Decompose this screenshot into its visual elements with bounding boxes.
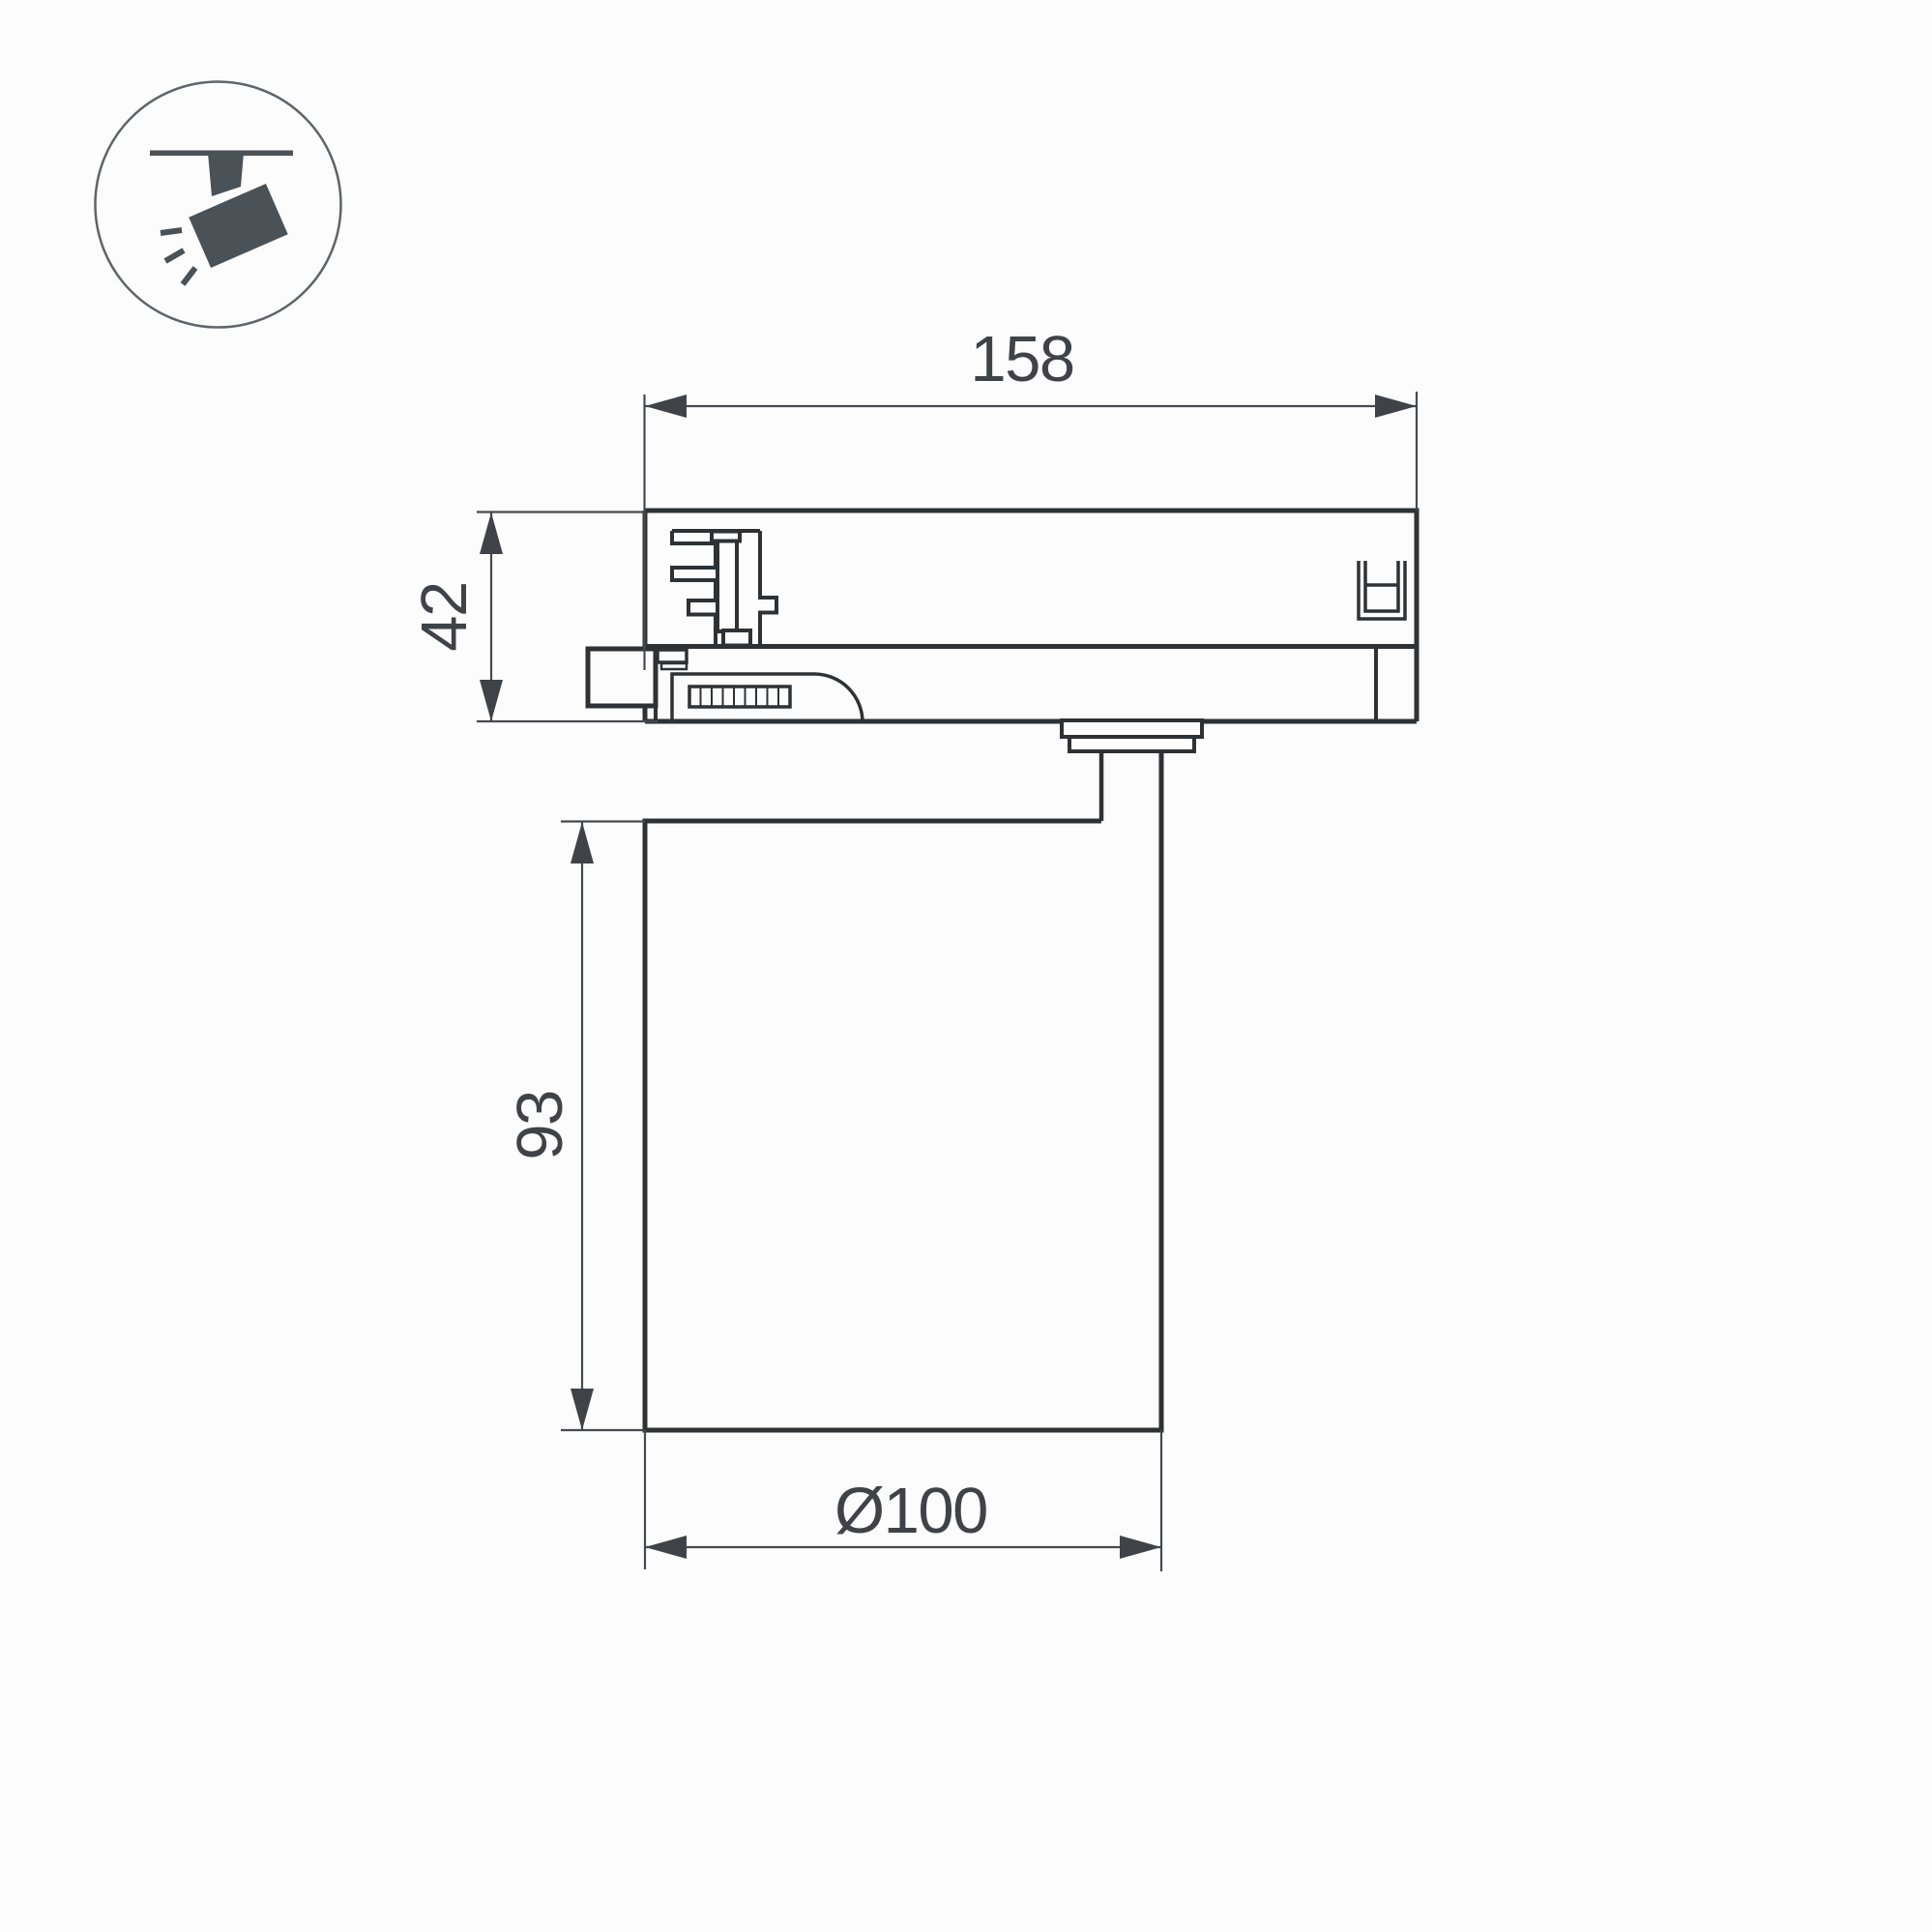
arrowhead-right [1375, 395, 1417, 418]
track-hook [1359, 561, 1405, 619]
body-diameter-label: Ø100 [834, 1475, 987, 1547]
plunger-post [717, 540, 737, 631]
arrowhead-right [1120, 1536, 1161, 1559]
track-adapter-outline [588, 511, 1417, 821]
arrowhead-down [571, 1389, 594, 1430]
adapter-height-label: 42 [408, 582, 481, 652]
swivel-joint [1062, 720, 1202, 821]
joint-plate-lower [1069, 737, 1194, 751]
dimension-adapter-width: 158 [645, 323, 1417, 511]
arrowhead-left [645, 1536, 687, 1559]
contact-assembly [672, 531, 776, 646]
body-height-label: 93 [504, 1091, 576, 1160]
adapter-width-label: 158 [970, 323, 1073, 395]
ribbed-slider [689, 687, 790, 707]
arrowhead-up [571, 822, 594, 864]
icon-circle [96, 82, 341, 328]
plunger-foot [723, 630, 750, 646]
contact-pins-contour [672, 531, 716, 645]
arrowhead-up [480, 512, 503, 554]
arrowhead-down [480, 680, 503, 721]
dimension-drawing-svg: 158 42 93 Ø100 [0, 0, 1932, 1932]
latch-notch-upper [658, 650, 687, 662]
latch-notch-lower [661, 663, 687, 669]
lamp-body-outline [645, 751, 1161, 1430]
dimension-body-diameter: Ø100 [645, 1430, 1161, 1571]
drawing-canvas: 158 42 93 Ø100 [0, 0, 1932, 1932]
arrowhead-left [645, 395, 687, 418]
plunger-cap [712, 532, 740, 542]
joint-plate-upper [1062, 720, 1202, 737]
contact-right-contour [760, 531, 776, 645]
track-spotlight-icon [96, 82, 341, 328]
dimension-body-height: 93 [504, 822, 645, 1431]
